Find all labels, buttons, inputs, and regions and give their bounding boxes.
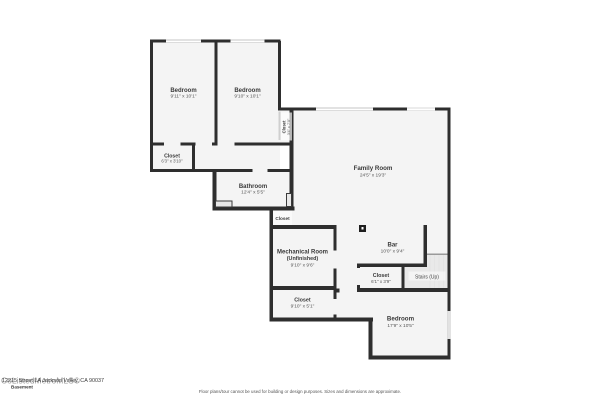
svg-text:Bedroom: Bedroom: [170, 88, 196, 94]
svg-text:24'5" x 19'3": 24'5" x 19'3": [360, 173, 387, 179]
svg-text:Stairs (Up): Stairs (Up): [415, 275, 439, 281]
svg-text:Family Room: Family Room: [354, 165, 393, 172]
svg-text:(Unfinished): (Unfinished): [287, 256, 319, 262]
svg-text:Bedroom: Bedroom: [234, 88, 260, 94]
svg-text:Closet: Closet: [294, 298, 311, 304]
svg-text:3'4" x 7'0": 3'4" x 7'0": [287, 118, 291, 135]
svg-text:Closet: Closet: [282, 120, 287, 133]
svg-text:6'3" x 3'10": 6'3" x 3'10": [161, 159, 183, 164]
svg-text:12215 Street LA Jackson Valley: 12215 Street LA Jackson Valley, CA 90037: [2, 378, 104, 384]
svg-text:10'0" x 9'4": 10'0" x 9'4": [381, 249, 405, 255]
svg-text:Bathroom: Bathroom: [239, 184, 267, 190]
svg-text:12'4" x 5'5": 12'4" x 5'5": [241, 190, 265, 196]
svg-text:9'10" x 5'1": 9'10" x 5'1": [291, 304, 315, 310]
svg-text:Bedroom: Bedroom: [387, 316, 415, 323]
svg-text:Closet: Closet: [275, 216, 290, 221]
svg-text:17'9" x 10'5": 17'9" x 10'5": [387, 323, 414, 329]
svg-text:Mechanical Room: Mechanical Room: [277, 250, 328, 256]
svg-text:Basement: Basement: [11, 385, 33, 390]
svg-text:9'10" x 9'6": 9'10" x 9'6": [291, 263, 315, 269]
svg-text:9'10" x 10'1": 9'10" x 10'1": [234, 94, 261, 100]
svg-text:6'1" x 3'9": 6'1" x 3'9": [371, 279, 391, 284]
svg-text:Bar: Bar: [387, 243, 398, 249]
svg-text:9'11" x 10'1": 9'11" x 10'1": [171, 94, 197, 100]
svg-text:Floor plans/tour cannot be use: Floor plans/tour cannot be used for buil…: [199, 389, 401, 394]
